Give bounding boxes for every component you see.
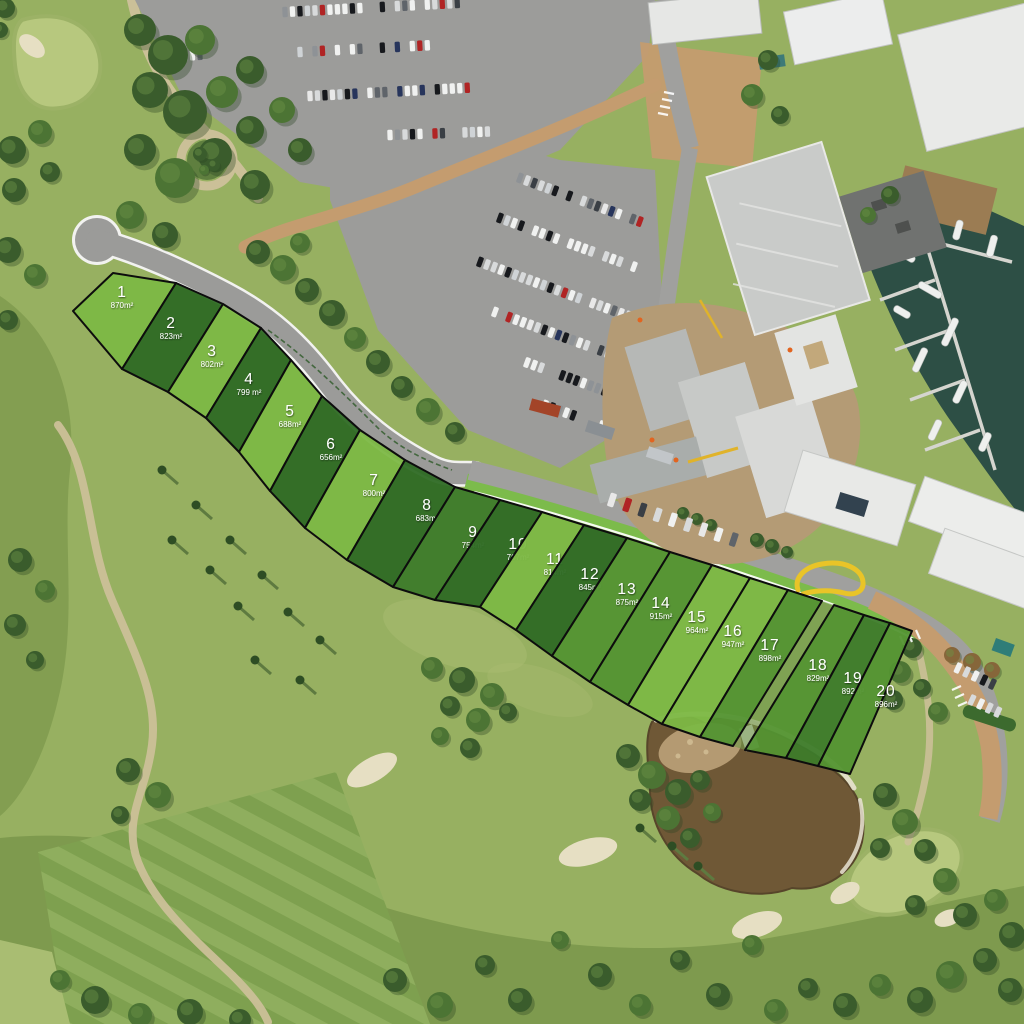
tree-highlight — [232, 1012, 243, 1023]
parked-car — [442, 84, 448, 95]
parked-car — [394, 42, 400, 53]
lot-number-label: 14 — [651, 595, 670, 612]
parked-car — [322, 90, 328, 101]
parked-car — [434, 84, 440, 95]
parked-car — [305, 5, 311, 16]
lot-area-label: 964m² — [686, 626, 709, 635]
parked-car — [432, 0, 438, 10]
tree-highlight — [169, 96, 191, 118]
parked-car — [447, 0, 453, 9]
parked-car — [424, 40, 430, 51]
palm-tree — [284, 608, 293, 617]
tree-highlight — [249, 243, 261, 255]
lot-area-label: 915m² — [650, 612, 673, 621]
tree-highlight — [53, 973, 63, 983]
parked-car — [395, 129, 401, 140]
tree-highlight — [369, 353, 381, 365]
tree-highlight — [632, 792, 643, 803]
lot-number-label: 13 — [617, 581, 636, 598]
safety-barrier — [650, 438, 655, 443]
tree-highlight — [705, 805, 714, 814]
tree-highlight — [137, 77, 155, 95]
lot-area-label: 799 m² — [237, 388, 262, 397]
tree-highlight — [28, 653, 37, 662]
tree-highlight — [119, 761, 131, 773]
tree-highlight — [956, 906, 968, 918]
tree-highlight — [876, 786, 888, 798]
tree-highlight — [910, 990, 923, 1003]
parked-car — [432, 128, 438, 139]
lot-number-label: 1 — [117, 284, 127, 301]
tree-highlight — [936, 871, 948, 883]
tree-highlight — [293, 236, 303, 246]
tree-highlight — [895, 812, 908, 825]
tree-highlight — [673, 953, 683, 963]
tree-highlight — [767, 541, 774, 548]
parked-car — [394, 1, 400, 12]
tree-highlight — [483, 686, 495, 698]
tree-highlight — [976, 951, 988, 963]
parked-car — [380, 42, 386, 53]
tree-highlight — [940, 965, 954, 979]
parked-car — [282, 7, 288, 18]
palm-tree — [206, 566, 215, 575]
parked-car — [417, 129, 423, 140]
tree-highlight — [659, 809, 671, 821]
palm-tree — [251, 656, 260, 665]
tree-highlight — [632, 997, 643, 1008]
tree-highlight — [31, 123, 43, 135]
tree-highlight — [836, 996, 848, 1008]
tree-highlight — [85, 990, 99, 1004]
parked-car — [375, 87, 381, 98]
parked-car — [470, 127, 476, 138]
palm-tree — [192, 501, 201, 510]
tree-highlight — [501, 705, 510, 714]
lot-area-label: 898m² — [759, 654, 782, 663]
parked-car — [307, 91, 313, 102]
lot-number-label: 8 — [422, 497, 432, 514]
tree-highlight — [987, 892, 998, 903]
tree-highlight — [642, 765, 656, 779]
lot-area-label: 875m² — [616, 598, 639, 607]
parked-car — [312, 5, 318, 16]
parked-car — [382, 87, 388, 98]
parked-car — [417, 40, 423, 51]
lot-number-label: 17 — [760, 637, 779, 654]
parked-car — [290, 6, 296, 17]
parked-car — [439, 0, 445, 9]
tree-highlight — [195, 149, 202, 156]
palm-tree — [226, 536, 235, 545]
parked-car — [485, 126, 491, 137]
tree-highlight — [873, 841, 883, 851]
parked-car — [409, 0, 415, 11]
parked-car — [462, 127, 468, 138]
tree-highlight — [240, 120, 254, 134]
tree-highlight — [619, 747, 631, 759]
parked-car — [367, 87, 373, 98]
tree-highlight — [744, 87, 755, 98]
palm-tree — [296, 676, 305, 685]
tree-highlight — [773, 108, 782, 117]
tree-highlight — [210, 161, 216, 167]
palm-tree — [316, 636, 325, 645]
parked-car — [402, 0, 408, 11]
tree-highlight — [693, 515, 699, 521]
tree-highlight — [469, 711, 481, 723]
safety-barrier — [788, 348, 793, 353]
tree-highlight — [965, 655, 974, 664]
parked-car — [297, 6, 303, 17]
tree-highlight — [322, 303, 335, 316]
lot-area-label: 870m² — [111, 301, 134, 310]
parked-car — [357, 3, 363, 14]
parked-car — [335, 45, 341, 56]
tree-highlight — [668, 782, 681, 795]
parked-car — [387, 130, 393, 141]
lot-number-label: 3 — [207, 343, 217, 360]
lot-number-label: 12 — [580, 566, 599, 583]
tree-highlight — [761, 53, 771, 63]
tree-highlight — [153, 40, 173, 60]
tree-highlight — [448, 425, 458, 435]
aerial-masterplan: 1870m²2823m²3802m²4799 m²5688m²6656m²780… — [0, 0, 1024, 1024]
lot-number-label: 2 — [166, 315, 176, 332]
dirt-speckle — [687, 739, 693, 745]
tree-highlight — [783, 548, 789, 554]
parked-car — [335, 4, 341, 15]
dirt-speckle — [676, 754, 681, 759]
tree-highlight — [478, 958, 488, 968]
parked-car — [320, 5, 326, 16]
tree-highlight — [752, 535, 759, 542]
parked-car — [327, 4, 333, 15]
tree-highlight — [1002, 925, 1015, 938]
palm-tree — [668, 842, 677, 851]
parked-car — [350, 3, 356, 14]
palm-tree — [168, 536, 177, 545]
tree-highlight — [1, 313, 11, 323]
tree-highlight — [463, 741, 473, 751]
tree-highlight — [709, 986, 721, 998]
tree-highlight — [386, 971, 398, 983]
tree-highlight — [180, 1002, 193, 1015]
parked-car — [379, 2, 385, 13]
tree-highlight — [394, 379, 405, 390]
tree-highlight — [679, 509, 685, 515]
tree-highlight — [38, 583, 48, 593]
parked-car — [464, 82, 470, 93]
tree-highlight — [298, 281, 310, 293]
tree-highlight — [5, 181, 17, 193]
tree-highlight — [148, 785, 161, 798]
lot-area-label: 829m² — [807, 674, 830, 683]
parked-car — [337, 89, 343, 100]
tree-highlight — [908, 898, 918, 908]
tree-highlight — [273, 258, 286, 271]
tree-highlight — [7, 617, 18, 628]
parked-car — [402, 129, 408, 140]
tree-highlight — [128, 138, 144, 154]
safety-barrier — [638, 318, 643, 323]
tree-highlight — [113, 808, 122, 817]
tree-highlight — [189, 29, 204, 44]
tree-highlight — [430, 995, 443, 1008]
tree-highlight — [240, 60, 254, 74]
tree-highlight — [160, 163, 180, 183]
lot-area-label: 656m² — [320, 453, 343, 462]
lot-area-label: 800m² — [363, 489, 386, 498]
parked-car — [357, 43, 363, 54]
palm-tree — [158, 466, 167, 475]
putting-green-top-left — [14, 16, 100, 108]
parked-car — [320, 45, 326, 56]
safety-barrier — [674, 458, 679, 463]
parked-car — [419, 85, 425, 96]
parked-car — [297, 47, 303, 58]
masterplan-canvas: 1870m²2823m²3802m²4799 m²5688m²6656m²780… — [0, 0, 1024, 1024]
lot-number-label: 18 — [808, 657, 827, 674]
parked-car — [409, 41, 415, 52]
lot-number-label: 15 — [687, 609, 706, 626]
parked-car — [345, 89, 351, 100]
tree-highlight — [801, 981, 811, 991]
parked-car — [449, 83, 455, 94]
parked-car — [315, 90, 321, 101]
parked-car — [350, 44, 356, 55]
tree-highlight — [128, 18, 144, 34]
lot-number-label: 20 — [876, 683, 895, 700]
tree-highlight — [883, 188, 892, 197]
tree-highlight — [862, 209, 870, 217]
tree-highlight — [2, 140, 16, 154]
lot-number-label: 6 — [326, 436, 336, 453]
plaza-pavers — [640, 42, 762, 168]
tree-highlight — [693, 773, 703, 783]
parked-car — [440, 128, 446, 139]
tree-highlight — [917, 842, 928, 853]
tree-highlight — [11, 551, 23, 563]
parked-car — [410, 129, 416, 140]
parked-car — [404, 86, 410, 97]
tree-highlight — [120, 205, 134, 219]
tree-highlight — [155, 225, 168, 238]
lot-area-label: 823m² — [160, 332, 183, 341]
parked-car — [424, 0, 430, 10]
tree-highlight — [511, 991, 523, 1003]
tree-highlight — [452, 670, 465, 683]
tree-highlight — [591, 966, 603, 978]
lot-area-label: 896m² — [875, 700, 898, 709]
lot-area-label: 688m² — [279, 420, 302, 429]
tree-highlight — [272, 100, 285, 113]
tree-highlight — [553, 933, 562, 942]
tree-highlight — [131, 1006, 143, 1018]
palm-tree — [234, 602, 243, 611]
tree-highlight — [347, 330, 358, 341]
lot-number-label: 7 — [369, 472, 379, 489]
parked-car — [412, 85, 418, 96]
tree-highlight — [915, 681, 924, 690]
tree-highlight — [200, 166, 205, 171]
tree-highlight — [43, 165, 53, 175]
tree-highlight — [433, 729, 442, 738]
tree-highlight — [946, 649, 954, 657]
tree-highlight — [419, 401, 431, 413]
parked-car — [477, 127, 483, 138]
parked-car — [330, 89, 336, 100]
tree-highlight — [244, 174, 259, 189]
tree-highlight — [767, 1002, 778, 1013]
parked-car — [342, 3, 348, 14]
tree-highlight — [1001, 981, 1013, 993]
tree-highlight — [210, 80, 226, 96]
lot-number-label: 16 — [723, 623, 742, 640]
palm-tree — [258, 571, 267, 580]
tree-highlight — [443, 699, 453, 709]
tree-highlight — [931, 705, 941, 715]
parked-car — [397, 86, 403, 97]
parked-car — [312, 46, 318, 57]
tree-highlight — [986, 664, 994, 672]
lot-number-label: 5 — [285, 403, 295, 420]
palm-tree — [694, 862, 703, 871]
tree-highlight — [291, 141, 303, 153]
palm-tree — [636, 824, 645, 833]
tree-highlight — [424, 660, 435, 671]
parked-car — [352, 88, 358, 99]
lot-number-label: 4 — [244, 371, 254, 388]
tree-highlight — [745, 938, 755, 948]
parked-car — [457, 83, 463, 94]
dirt-speckle — [704, 750, 709, 755]
lot-area-label: 802m² — [201, 360, 224, 369]
parked-car — [454, 0, 460, 8]
tree-highlight — [683, 831, 693, 841]
tree-highlight — [27, 267, 38, 278]
lot-area-label: 947m² — [722, 640, 745, 649]
tree-highlight — [872, 977, 883, 988]
